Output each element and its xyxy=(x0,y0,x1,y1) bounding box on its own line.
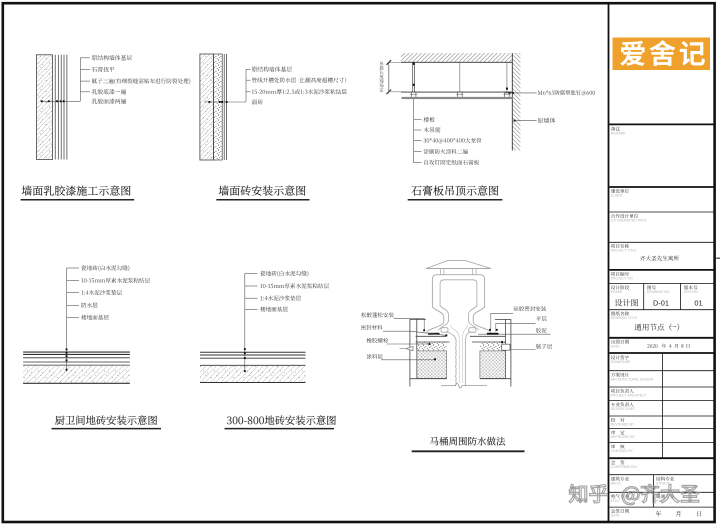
svg-text:PROJECT TITLE: PROJECT TITLE xyxy=(611,249,638,253)
svg-text:CHECKED BY: CHECKED BY xyxy=(611,449,634,453)
svg-text:PHASE: PHASE xyxy=(611,290,623,294)
svg-text:REMARK: REMARK xyxy=(611,131,626,135)
svg-text:ARCHITECTURAL DESIGN: ARCHITECTURAL DESIGN xyxy=(611,377,654,381)
svg-text:DRAWING TITLE: DRAWING TITLE xyxy=(611,316,638,320)
svg-text:CONFIRMATION: CONFIRMATION xyxy=(611,465,637,469)
svg-text:DESIGN CHIEF: DESIGN CHIEF xyxy=(611,407,635,411)
svg-text:D-01: D-01 xyxy=(653,299,669,308)
svg-text:01: 01 xyxy=(694,299,702,308)
svg-text:DATE: DATE xyxy=(611,344,621,348)
svg-text:EDITION: EDITION xyxy=(684,290,698,294)
svg-text:APPROVED BY: APPROVED BY xyxy=(611,435,636,439)
svg-text:CO-ORDINATED WITH: CO-ORDINATED WITH xyxy=(611,219,647,223)
svg-text:DRAWING NO.: DRAWING NO. xyxy=(647,290,670,294)
svg-text:PROJECT NO.: PROJECT NO. xyxy=(611,277,634,281)
svg-text:DATE: DATE xyxy=(611,514,621,518)
svg-text:PROJECT ARCHITECT: PROJECT ARCHITECT xyxy=(611,394,647,398)
svg-text:CLIENT: CLIENT xyxy=(611,194,623,198)
svg-text:ELEC.: ELEC. xyxy=(611,499,621,503)
svg-text:REVIEWED BY: REVIEWED BY xyxy=(611,423,635,427)
svg-text:ARCH.: ARCH. xyxy=(611,481,622,485)
svg-text:STRUCT.: STRUCT. xyxy=(656,481,670,485)
svg-text:SIGNATURE: SIGNATURE xyxy=(611,360,631,364)
